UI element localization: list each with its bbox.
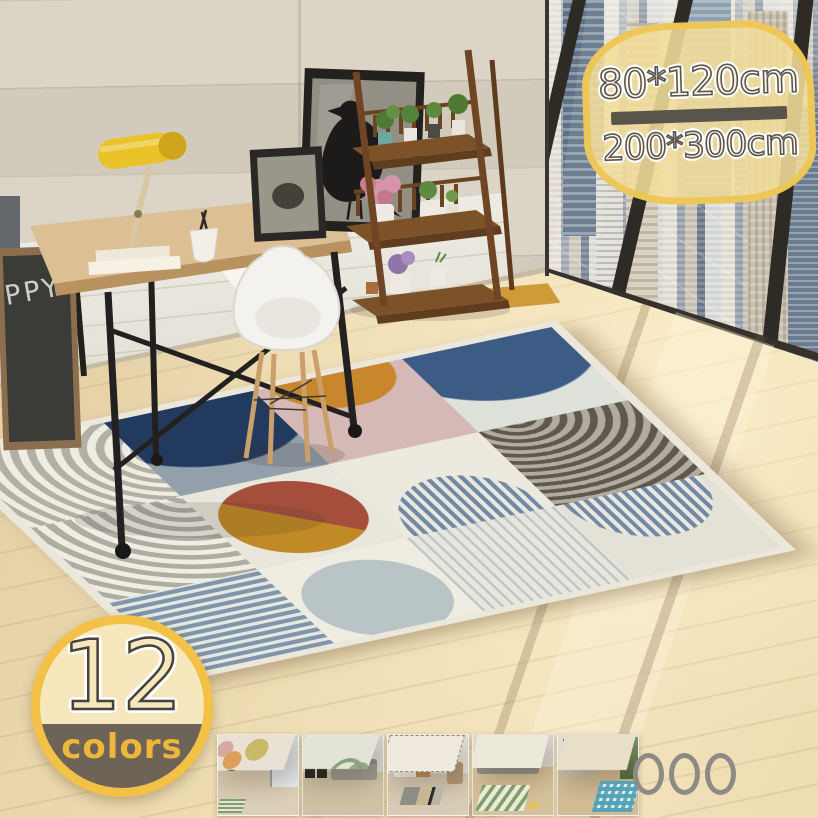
window-frame-edge (545, 0, 549, 276)
colors-badge-chord: colors (40, 724, 204, 788)
product-photo: PPY (0, 0, 818, 818)
variant-thumbnails (217, 734, 639, 816)
thumb-rug (472, 735, 549, 768)
thumb-rug-detail (592, 781, 639, 812)
thumb-rug-detail (476, 785, 530, 811)
pagination-ovals (633, 753, 736, 795)
pagination-oval (669, 753, 700, 795)
pagination-oval (633, 753, 664, 795)
color-count: 12 (40, 628, 204, 724)
thumb-rug-accent (528, 802, 539, 809)
colors-badge: 12 colors (31, 615, 213, 797)
pagination-oval (705, 753, 736, 795)
variant-thumbnail-1[interactable] (217, 734, 299, 816)
variant-thumbnail-3[interactable] (387, 734, 469, 816)
thumb-rug-detail (399, 787, 444, 805)
variant-thumbnail-5[interactable] (557, 734, 639, 816)
thumb-rug (387, 735, 465, 772)
colors-badge-inner: 12 colors (40, 624, 204, 788)
variant-thumbnail-2[interactable] (302, 734, 384, 816)
size-divider (611, 106, 787, 125)
colors-label: colors (61, 727, 183, 767)
size-small: 80*120cm (597, 59, 798, 106)
thumb-rug (302, 735, 380, 769)
size-large: 200*300cm (602, 126, 799, 168)
thumb-rug (217, 735, 295, 770)
thumb-rug-detail (217, 799, 246, 813)
thumb-rug (557, 735, 636, 770)
variant-thumbnail-4[interactable] (472, 734, 554, 816)
size-badge: 80*120cm 200*300cm (580, 18, 818, 208)
